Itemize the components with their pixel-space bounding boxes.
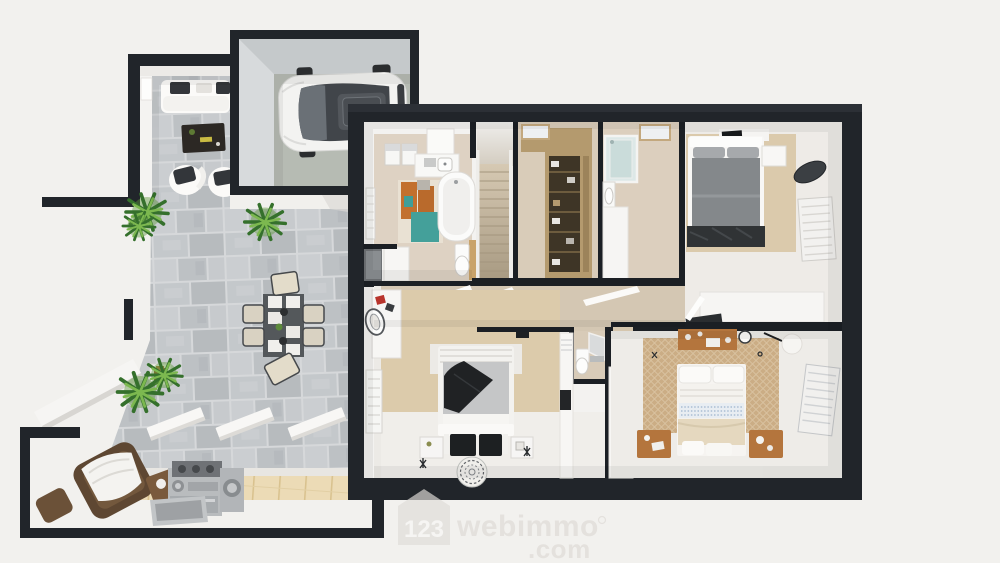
svg-text:.com: .com xyxy=(528,534,591,563)
svg-text:123: 123 xyxy=(404,516,444,543)
